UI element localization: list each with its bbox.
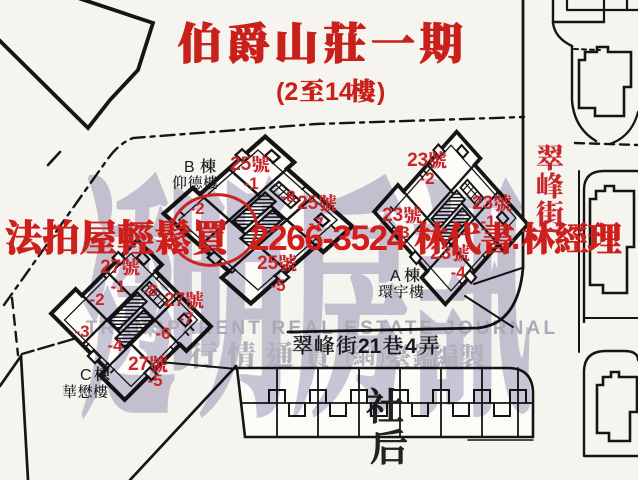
svg-text:-3: -3 xyxy=(394,223,409,242)
svg-text:27: 27 xyxy=(164,290,185,311)
svg-text:-8: -8 xyxy=(280,187,295,206)
svg-text:-1: -1 xyxy=(480,212,495,231)
svg-text:23: 23 xyxy=(472,193,493,214)
svg-text:-2: -2 xyxy=(89,290,104,309)
svg-text:-4: -4 xyxy=(450,263,466,282)
svg-text:-3: -3 xyxy=(208,221,223,240)
svg-text:-5: -5 xyxy=(270,276,285,295)
svg-text:(: ( xyxy=(345,344,353,369)
svg-text:-7: -7 xyxy=(308,214,323,233)
svg-text:-8: -8 xyxy=(142,281,157,300)
svg-text:27: 27 xyxy=(128,354,149,375)
svg-text:25: 25 xyxy=(257,253,279,274)
svg-text:(2: (2 xyxy=(276,78,298,106)
svg-text:-4: -4 xyxy=(107,336,123,355)
svg-text:25: 25 xyxy=(230,154,252,175)
svg-text:-6: -6 xyxy=(155,324,170,343)
svg-text:-1: -1 xyxy=(110,277,125,296)
svg-text:25: 25 xyxy=(297,193,319,214)
svg-text:14: 14 xyxy=(325,78,353,106)
svg-text:-2: -2 xyxy=(189,199,204,218)
svg-text:-2: -2 xyxy=(419,169,434,188)
svg-text:-5: -5 xyxy=(147,371,162,390)
svg-text:23: 23 xyxy=(407,150,428,171)
svg-text:): ) xyxy=(377,78,385,106)
svg-text:-7: -7 xyxy=(178,309,193,328)
svg-text:C: C xyxy=(80,367,92,384)
svg-text:27: 27 xyxy=(100,257,121,278)
svg-text:.: . xyxy=(511,219,520,257)
svg-text:-3: -3 xyxy=(74,322,89,341)
svg-text:23: 23 xyxy=(430,243,451,264)
svg-text:-1: -1 xyxy=(243,174,258,193)
svg-text:B: B xyxy=(184,159,195,176)
svg-text:): ) xyxy=(378,344,385,369)
